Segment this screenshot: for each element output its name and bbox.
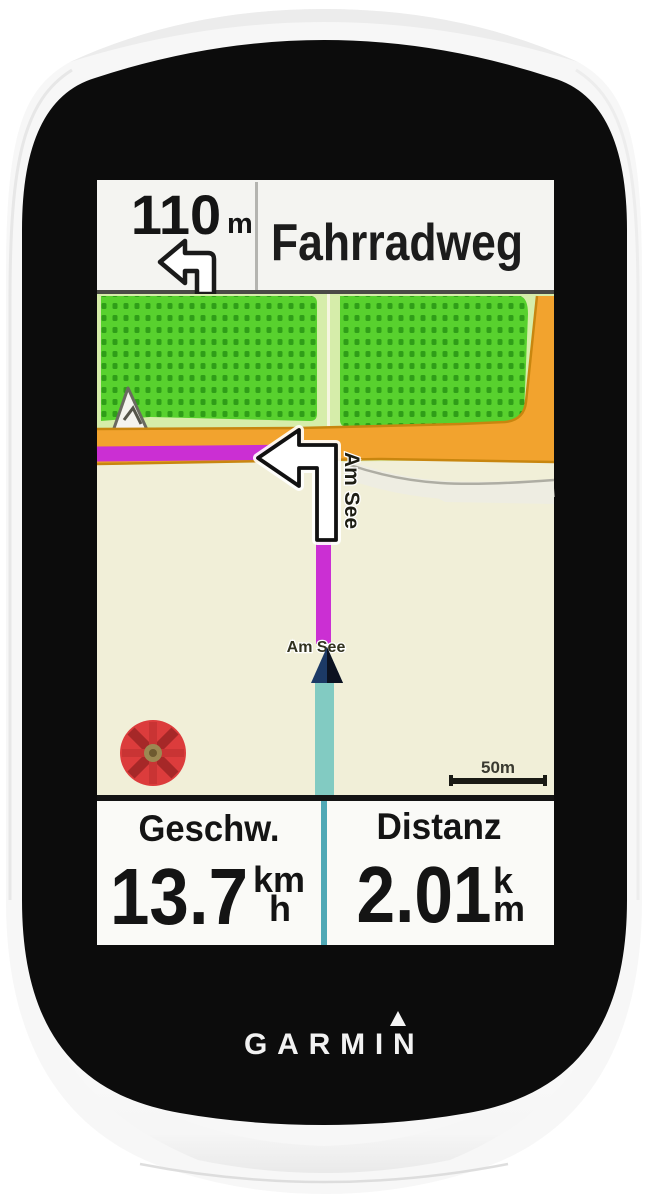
svg-text:m: m [493, 888, 525, 929]
svg-text:h: h [269, 888, 291, 929]
svg-text:Am See: Am See [340, 452, 363, 529]
svg-text:13.7: 13.7 [110, 852, 248, 941]
svg-text:Geschw.: Geschw. [139, 808, 280, 849]
svg-text:50m: 50m [481, 758, 515, 777]
svg-text:Am See: Am See [287, 639, 346, 656]
svg-text:Fahrradweg: Fahrradweg [271, 214, 523, 272]
svg-text:GARMIN: GARMIN [244, 1028, 424, 1061]
svg-text:m: m [227, 208, 253, 240]
svg-text:110: 110 [131, 183, 221, 246]
svg-text:2.01: 2.01 [357, 850, 492, 939]
svg-text:Distanz: Distanz [377, 806, 502, 847]
